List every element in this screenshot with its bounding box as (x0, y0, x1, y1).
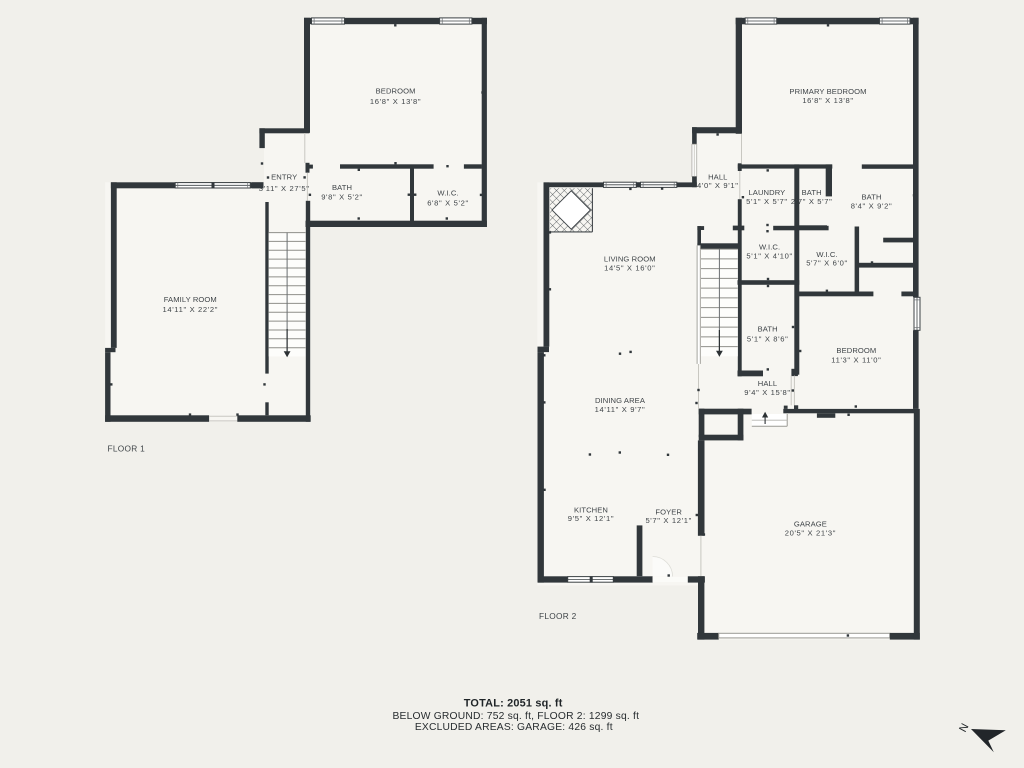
svg-text:TOTAL: 2051 sq. ft: TOTAL: 2051 sq. ft (464, 698, 563, 710)
svg-text:5'1" X 5'7": 5'1" X 5'7" (746, 197, 788, 206)
svg-text:3'11" X 27'5": 3'11" X 27'5" (259, 184, 310, 193)
svg-text:DINING AREA: DINING AREA (595, 396, 646, 405)
svg-text:5'7" X 12'1": 5'7" X 12'1" (645, 516, 692, 525)
svg-text:FLOOR 1: FLOOR 1 (108, 444, 146, 454)
svg-text:BATH: BATH (758, 325, 778, 334)
svg-text:14'5" X 16'0": 14'5" X 16'0" (604, 263, 655, 272)
svg-text:5'7" X 6'0": 5'7" X 6'0" (806, 259, 848, 268)
svg-text:GARAGE: GARAGE (794, 519, 827, 528)
svg-text:KITCHEN: KITCHEN (574, 505, 608, 514)
svg-text:9'4" X 15'8": 9'4" X 15'8" (744, 388, 791, 397)
svg-text:BEDROOM: BEDROOM (836, 346, 876, 355)
svg-text:BATH: BATH (332, 183, 352, 192)
svg-text:5'1" X 4'10": 5'1" X 4'10" (746, 252, 793, 261)
svg-text:ENTRY: ENTRY (271, 173, 297, 182)
svg-text:9'5" X 12'1": 9'5" X 12'1" (568, 514, 615, 523)
svg-text:11'3" X 11'0": 11'3" X 11'0" (831, 355, 881, 364)
svg-text:20'5" X 21'3": 20'5" X 21'3" (785, 528, 836, 537)
svg-text:14'11" X 9'7": 14'11" X 9'7" (595, 405, 646, 414)
svg-text:FLOOR 2: FLOOR 2 (539, 611, 577, 621)
svg-text:BEDROOM: BEDROOM (376, 86, 416, 95)
svg-text:W.I.C.: W.I.C. (437, 188, 458, 197)
svg-text:W.I.C.: W.I.C. (759, 242, 780, 251)
svg-text:BATH: BATH (802, 188, 822, 197)
svg-text:4'0" X 9'1": 4'0" X 9'1" (697, 181, 739, 190)
svg-text:PRIMARY BEDROOM: PRIMARY BEDROOM (789, 87, 866, 96)
svg-text:9'8" X 5'2": 9'8" X 5'2" (321, 193, 363, 202)
svg-text:8'4" X 9'2": 8'4" X 9'2" (851, 202, 893, 211)
svg-text:16'8" X 13'8": 16'8" X 13'8" (802, 96, 853, 105)
svg-text:6'8" X 5'2": 6'8" X 5'2" (427, 198, 469, 207)
svg-text:BELOW GROUND: 752 sq. ft, FLOO: BELOW GROUND: 752 sq. ft, FLOOR 2: 1299 … (392, 711, 639, 722)
svg-text:2'7" X 5'7": 2'7" X 5'7" (791, 197, 833, 206)
svg-text:5'1" X 8'6": 5'1" X 8'6" (747, 334, 789, 343)
svg-text:BATH: BATH (861, 193, 881, 202)
svg-text:LAUNDRY: LAUNDRY (748, 188, 785, 197)
svg-text:EXCLUDED AREAS: GARAGE: 426 sq: EXCLUDED AREAS: GARAGE: 426 sq. ft (415, 722, 613, 733)
svg-text:HALL: HALL (758, 379, 777, 388)
svg-text:16'8" X 13'8": 16'8" X 13'8" (370, 97, 421, 106)
svg-text:14'11" X 22'2": 14'11" X 22'2" (162, 305, 218, 314)
svg-text:FAMILY ROOM: FAMILY ROOM (164, 295, 217, 304)
